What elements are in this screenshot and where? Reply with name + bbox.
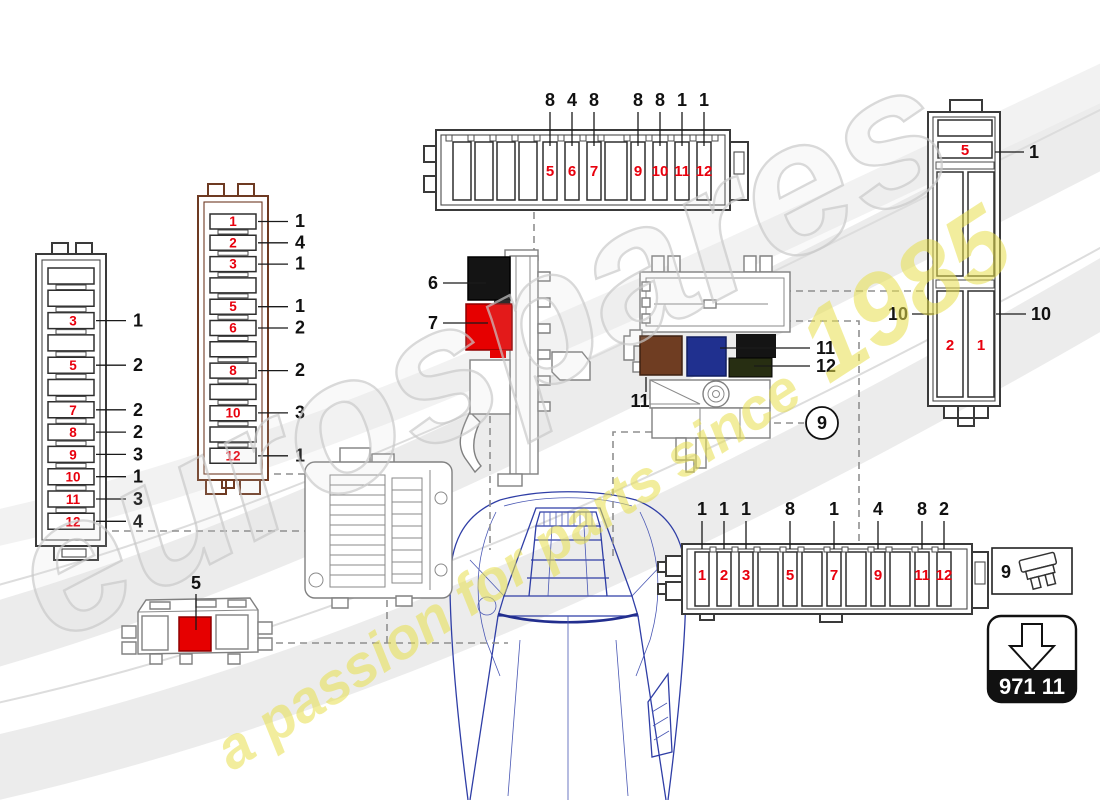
fuse-position: 5 — [69, 358, 77, 373]
part-ref[interactable]: 11 — [630, 391, 649, 411]
fuse-prong — [1045, 573, 1055, 586]
small-fuse-slot — [938, 120, 992, 136]
fuse-diagram-page: 3 5 7 8 9 10 11 12 1 2 2 2 3 1 3 4 1 — [0, 0, 1100, 800]
fuse-position: 12 — [936, 567, 953, 584]
fuse-position: 5 — [961, 142, 969, 159]
right-connector — [972, 552, 988, 608]
part-ref[interactable]: 1 — [295, 296, 305, 316]
part-ref[interactable]: 4 — [873, 499, 883, 519]
part-ref[interactable]: 2 — [939, 499, 949, 519]
fuse-position: 1 — [698, 567, 706, 584]
fuse-position: 7 — [830, 567, 838, 584]
fuse-position: 2 — [946, 337, 954, 354]
fuse-position: 11 — [914, 567, 930, 584]
fuse-position: 8 — [69, 425, 77, 440]
callout-circle-number[interactable]: 9 — [817, 413, 827, 433]
part-ref[interactable]: 1 — [699, 90, 709, 110]
callout-circle[interactable]: 9 — [806, 407, 838, 439]
fuse-prong — [1031, 577, 1041, 590]
fuse-position: 2 — [720, 567, 728, 584]
empty-relay-slot — [216, 615, 248, 649]
fuse-position: 3 — [69, 314, 77, 329]
left-connector — [658, 556, 682, 600]
fuse-position: 3 — [229, 257, 237, 272]
part-ref[interactable]: 2 — [133, 355, 143, 375]
part-ref[interactable]: 8 — [655, 90, 665, 110]
fuse-position: 5 — [546, 163, 554, 180]
legend-number: 9 — [1001, 562, 1011, 582]
fuse-position: 5 — [229, 299, 237, 314]
part-ref[interactable]: 1 — [133, 311, 143, 331]
part-ref[interactable]: 8 — [785, 499, 795, 519]
car-side-vent — [648, 674, 672, 757]
part-ref[interactable]: 8 — [633, 90, 643, 110]
part-ref[interactable]: 1 — [295, 254, 305, 274]
part-number-box[interactable]: 971 11 — [988, 616, 1076, 702]
part-ref[interactable]: 1 — [719, 499, 729, 519]
part-ref[interactable]: 8 — [545, 90, 555, 110]
part-ref[interactable]: 1 — [829, 499, 839, 519]
fuse-position: 6 — [568, 163, 576, 180]
fuse-position: 1 — [229, 214, 237, 229]
part-ref[interactable]: 4 — [567, 90, 577, 110]
fuse-position: 6 — [229, 321, 237, 336]
part-ref[interactable]: 10 — [1031, 304, 1051, 324]
fuse-position: 9 — [874, 567, 882, 584]
part-ref[interactable]: 8 — [917, 499, 927, 519]
part-ref[interactable]: 1 — [677, 90, 687, 110]
block-feet — [944, 406, 988, 426]
fuse-position: 3 — [742, 567, 750, 584]
bracket-foot — [498, 474, 522, 486]
block-feet — [700, 614, 842, 622]
fuse-position: 5 — [786, 567, 794, 584]
block-tab — [950, 100, 982, 112]
part-ref[interactable]: 1 — [697, 499, 707, 519]
part-ref[interactable]: 1 — [1029, 142, 1039, 162]
part-number[interactable]: 971 11 — [999, 674, 1065, 699]
legend-box[interactable]: 9 — [992, 548, 1072, 594]
part-ref-labels: 8 4 8 8 8 1 1 — [545, 90, 709, 110]
fuse-diagram-canvas: 3 5 7 8 9 10 11 12 1 2 2 2 3 1 3 4 1 — [0, 0, 1100, 800]
relay-olive-top — [736, 334, 776, 358]
part-ref[interactable]: 1 — [295, 211, 305, 231]
part-ref[interactable]: 8 — [589, 90, 599, 110]
part-ref[interactable]: 4 — [295, 232, 305, 252]
fuse-position: 2 — [229, 235, 237, 250]
fuse-position: 7 — [69, 403, 77, 418]
part-ref[interactable]: 1 — [741, 499, 751, 519]
block-tabs — [208, 184, 254, 196]
car-crease — [508, 616, 628, 800]
left-connector — [424, 146, 436, 192]
fuse-position: 1 — [977, 337, 985, 354]
